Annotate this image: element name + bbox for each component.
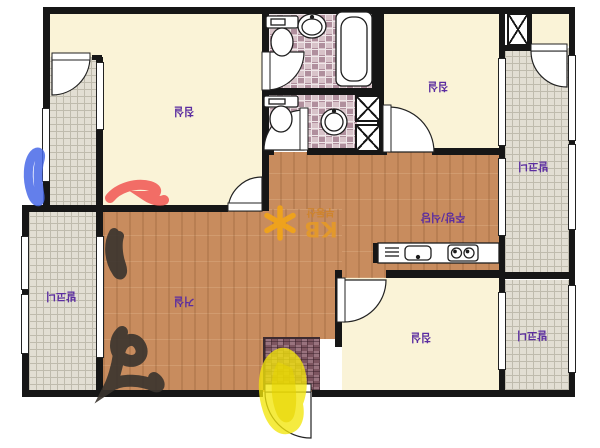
duct-shaft-icon [507, 13, 529, 46]
wall-hall-top-c [432, 148, 499, 155]
window-bedroom1-strip [96, 62, 104, 130]
window-right-outer-c [568, 285, 576, 373]
floor-bathroom-2 [269, 95, 357, 150]
window-kitchen-balcony [498, 158, 506, 236]
floor-plan: 침실 침실 침실 거실 주방/식당 발코니 발코니 발코니 KB 부동산 [0, 0, 600, 448]
window-bedroom3-balcony [498, 292, 506, 370]
wall-bedroom3-left [335, 270, 342, 347]
window-right-outer-a [568, 55, 576, 141]
wall-bedroom3-top [386, 270, 499, 278]
label-bedroom-top-left: 침실 [174, 104, 194, 120]
window-balcony-left-outer-a [21, 236, 29, 290]
floor-bathroom-1 [269, 13, 372, 92]
wall-top [43, 7, 575, 14]
wall-hall-top-a [262, 148, 274, 155]
wall-nook-divider [529, 13, 532, 45]
kb-watermark: KB 부동산 [252, 194, 348, 252]
label-bedroom-top-right: 침실 [428, 79, 448, 95]
kb-brand-text: KB [303, 219, 337, 240]
kb-subtitle-text: 부동산 [307, 207, 335, 217]
duct-shaft-icon [355, 124, 381, 152]
wall-bath-divider [262, 88, 377, 95]
label-balcony-right-lower: 발코니 [517, 328, 547, 344]
wall-balcony-divider [505, 272, 575, 279]
blue-marker-scribble [28, 152, 40, 202]
floor-utility-strip [49, 57, 102, 209]
wall-bath1-right [372, 7, 384, 95]
wall-bottom-left [22, 390, 263, 397]
label-balcony-right-upper: 발코니 [518, 159, 548, 175]
kb-star-icon [262, 205, 298, 241]
door-arc-entrance [265, 392, 311, 438]
label-balcony-left: 발코니 [46, 289, 76, 305]
kb-watermark-text: KB 부동산 [303, 207, 337, 240]
wall-bath1-left-a [262, 7, 269, 52]
floor-utility-room [49, 13, 102, 57]
window-bedroom2-balcony [498, 58, 506, 146]
wall-living-north [22, 205, 228, 212]
wall-bottom-right [312, 390, 575, 397]
window-balcony-left-outer-b [21, 294, 29, 354]
duct-shaft-icon [355, 95, 381, 122]
wall-utility-stub [43, 55, 50, 60]
label-living-room: 거실 [174, 294, 194, 310]
window-living-balcony [96, 236, 104, 358]
wall-counter-stub [373, 243, 378, 263]
label-bedroom-bottom: 침실 [411, 330, 431, 346]
floor-corner-nook [531, 13, 569, 46]
window-utility-strip-outer [42, 108, 50, 182]
floor-entrance-vestibule [263, 337, 320, 390]
label-kitchen-dining: 주방/식당 [421, 210, 466, 226]
window-right-outer-b [568, 144, 576, 230]
